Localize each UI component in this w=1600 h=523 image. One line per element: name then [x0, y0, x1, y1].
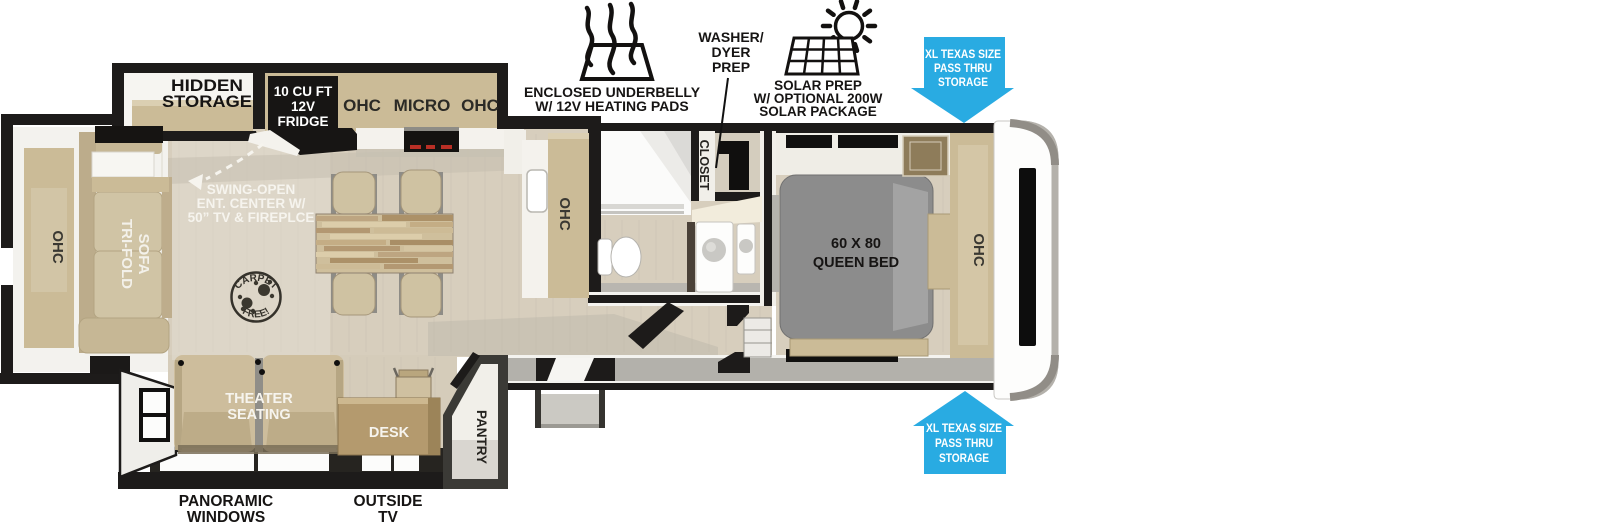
- svg-text:SOFA: SOFA: [135, 234, 152, 275]
- svg-text:PANORAMIC: PANORAMIC: [179, 493, 273, 510]
- svg-text:10 CU FT: 10 CU FT: [274, 84, 333, 99]
- svg-text:FRIDGE: FRIDGE: [277, 114, 328, 129]
- svg-text:OHC: OHC: [49, 230, 66, 264]
- svg-text:XL TEXAS SIZE: XL TEXAS SIZE: [926, 423, 1002, 435]
- svg-text:OUTSIDE: OUTSIDE: [354, 493, 423, 510]
- svg-text:DYER: DYER: [712, 44, 751, 60]
- svg-text:60 X 80: 60 X 80: [831, 236, 881, 252]
- svg-text:OHC: OHC: [970, 233, 987, 267]
- svg-text:SEATING: SEATING: [227, 407, 290, 423]
- svg-text:PASS THRU: PASS THRU: [935, 438, 993, 450]
- svg-text:STORAGE: STORAGE: [162, 92, 252, 111]
- svg-text:QUEEN BED: QUEEN BED: [813, 255, 899, 271]
- svg-text:TV: TV: [378, 509, 398, 523]
- svg-text:SOLAR PACKAGE: SOLAR PACKAGE: [759, 104, 877, 119]
- svg-text:PREP: PREP: [712, 59, 750, 75]
- svg-text:PANTRY: PANTRY: [474, 410, 489, 464]
- svg-text:DESK: DESK: [369, 425, 410, 441]
- svg-text:XL TEXAS SIZE: XL TEXAS SIZE: [925, 49, 1001, 61]
- svg-text:WINDOWS: WINDOWS: [187, 509, 265, 523]
- svg-text:OHC: OHC: [343, 96, 381, 115]
- svg-text:STORAGE: STORAGE: [938, 77, 988, 89]
- svg-text:MICRO: MICRO: [394, 96, 451, 115]
- svg-text:PASS THRU: PASS THRU: [934, 63, 992, 75]
- svg-text:OHC: OHC: [556, 197, 573, 231]
- svg-text:50” TV & FIREPLCE: 50” TV & FIREPLCE: [188, 210, 315, 225]
- svg-text:THEATER: THEATER: [225, 391, 293, 407]
- svg-text:STORAGE: STORAGE: [939, 453, 989, 465]
- svg-text:TRI-FOLD: TRI-FOLD: [118, 219, 135, 289]
- svg-text:WASHER/: WASHER/: [698, 29, 763, 45]
- svg-text:SWING-OPEN: SWING-OPEN: [207, 182, 296, 197]
- svg-text:12V: 12V: [291, 99, 315, 114]
- svg-text:ENT. CENTER W/: ENT. CENTER W/: [197, 196, 306, 211]
- svg-text:W/ 12V HEATING PADS: W/ 12V HEATING PADS: [535, 98, 689, 114]
- svg-text:CLOSET: CLOSET: [697, 140, 711, 191]
- svg-text:OHC: OHC: [461, 96, 499, 115]
